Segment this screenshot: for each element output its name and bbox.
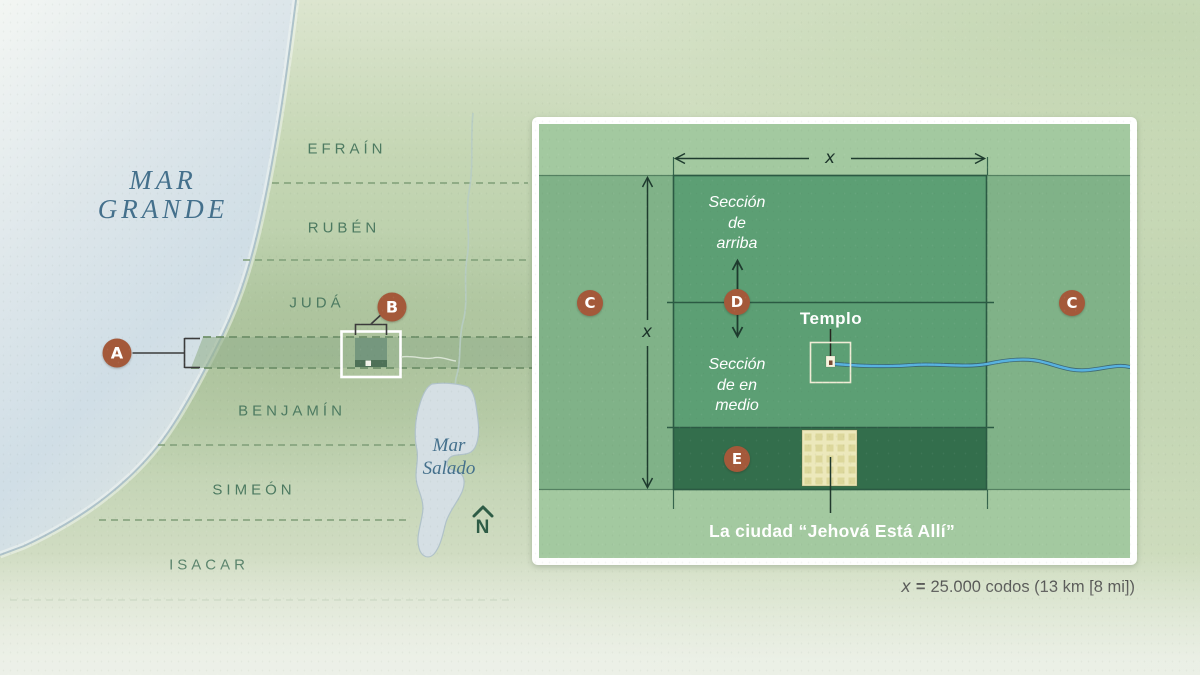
inset-artwork bbox=[539, 124, 1130, 558]
tribe-label-juda: JUDÁ bbox=[289, 295, 344, 312]
city-name-label: La ciudad “Jehová Está Allí” bbox=[709, 521, 955, 542]
great-sea-shape bbox=[0, 0, 296, 555]
upper-section-label: Sección de arriba bbox=[652, 193, 822, 255]
tribe-label-isacar: ISACAR bbox=[169, 557, 249, 574]
tribe-label-efrain: EFRAÍN bbox=[307, 141, 386, 158]
marker-c-left: C bbox=[577, 290, 603, 316]
middle-section-label: Sección de en medio bbox=[652, 355, 822, 417]
marker-c-right: C bbox=[1059, 290, 1085, 316]
salt-sea-label: Mar Salado bbox=[399, 434, 499, 480]
marker-b: B bbox=[378, 293, 407, 322]
marker-e: E bbox=[724, 446, 750, 472]
scale-legend: x=25.000 codos (13 km [8 mi]) bbox=[901, 577, 1135, 597]
tribe-label-benjamin: BENJAMÍN bbox=[238, 403, 346, 420]
middle-section-line3: medio bbox=[652, 396, 822, 417]
marker-d: D bbox=[724, 289, 750, 315]
salt-sea-line2: Salado bbox=[423, 458, 476, 479]
inset-content: x x Sección de arriba Sección de en medi… bbox=[539, 124, 1130, 558]
compass-north: N bbox=[461, 504, 505, 539]
tribe-label-simeon: SIMEÓN bbox=[212, 482, 295, 499]
dimension-label-x-left: x bbox=[642, 322, 652, 342]
upper-section-line1: Sección bbox=[652, 193, 822, 214]
tribe-label-ruben: RUBÉN bbox=[308, 220, 381, 237]
scale-variable: x bbox=[901, 577, 911, 596]
ezekiel-land-map: MAR GRANDE EFRAÍN RUBÉN JUDÁ BENJAMÍN SI… bbox=[0, 0, 1200, 675]
great-sea-line1: MAR bbox=[129, 165, 196, 195]
temple-icon-door bbox=[829, 361, 833, 366]
upper-section-line3: arriba bbox=[652, 234, 822, 255]
north-chevron-icon bbox=[461, 504, 505, 518]
city-square bbox=[802, 430, 857, 486]
great-sea-label: MAR GRANDE bbox=[68, 166, 258, 224]
inset-panel: x x Sección de arriba Sección de en medi… bbox=[532, 117, 1137, 565]
great-sea-line2: GRANDE bbox=[98, 194, 228, 224]
dimension-label-x-top: x bbox=[825, 148, 835, 168]
temple-label: Templo bbox=[800, 309, 862, 329]
upper-section-line2: de bbox=[652, 214, 822, 235]
marker-a: A bbox=[103, 339, 132, 368]
map-city-dot bbox=[366, 361, 372, 367]
salt-sea-line1: Mar bbox=[433, 435, 466, 456]
scale-text: 25.000 codos (13 km [8 mi]) bbox=[930, 578, 1135, 596]
middle-section-line2: de en bbox=[652, 376, 822, 397]
scale-equals: = bbox=[911, 578, 931, 596]
middle-section-line1: Sección bbox=[652, 355, 822, 376]
compass-letter: N bbox=[461, 517, 505, 539]
